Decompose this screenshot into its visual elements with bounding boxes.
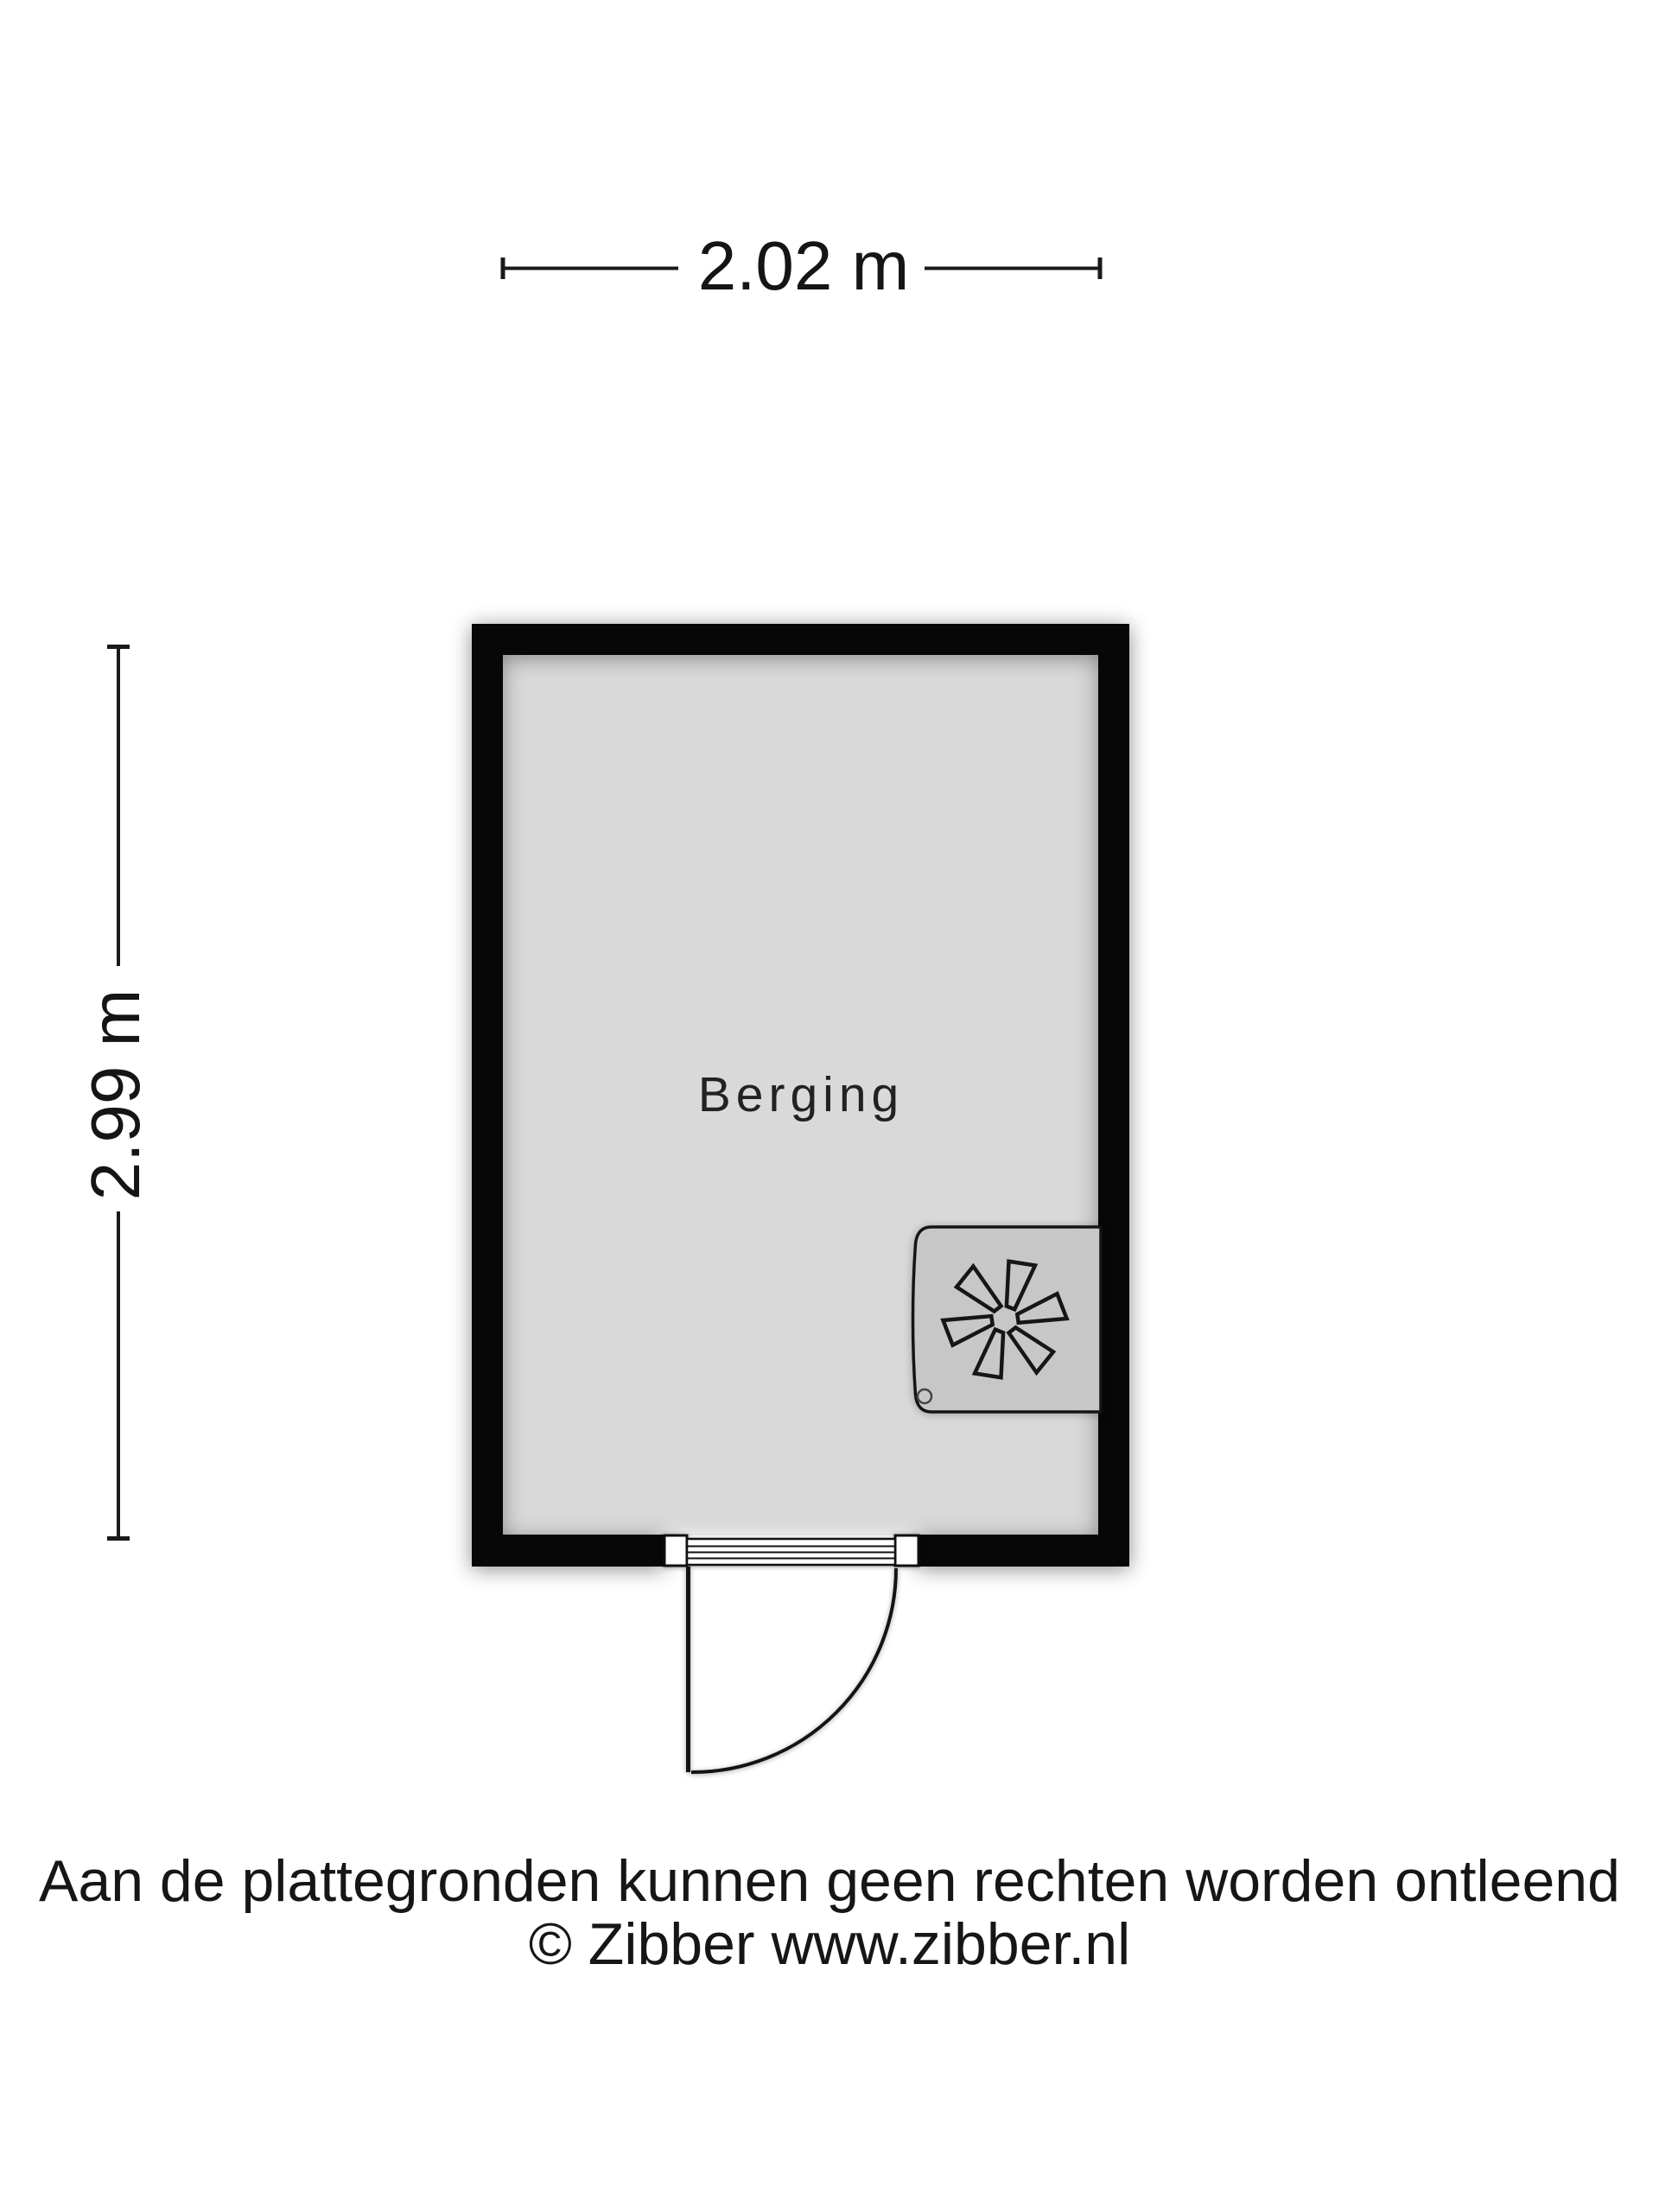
width-dimension-label: 2.02 m bbox=[674, 230, 933, 302]
footer-copyright: © Zibber www.zibber.nl bbox=[0, 1915, 1659, 1974]
wall-bottom-left bbox=[472, 1535, 664, 1567]
height-dimension-label: 2.99 m bbox=[77, 965, 155, 1224]
room-label: Berging bbox=[502, 1069, 1100, 1121]
wall-top bbox=[472, 624, 1129, 655]
door-post-left bbox=[664, 1535, 687, 1566]
door bbox=[664, 1535, 918, 1772]
floorplan-canvas: 2.02 m 2.99 m Berging Aan de plattegrond… bbox=[0, 0, 1659, 2212]
wall-right bbox=[1098, 624, 1129, 1567]
door-swing-arc bbox=[691, 1568, 896, 1772]
wall-bottom-right bbox=[918, 1535, 1129, 1567]
door-post-right bbox=[895, 1535, 918, 1566]
wall-left bbox=[472, 624, 503, 1567]
footer-disclaimer: Aan de plattegronden kunnen geen rechten… bbox=[0, 1852, 1659, 1910]
ventilation-unit bbox=[913, 1227, 1102, 1412]
